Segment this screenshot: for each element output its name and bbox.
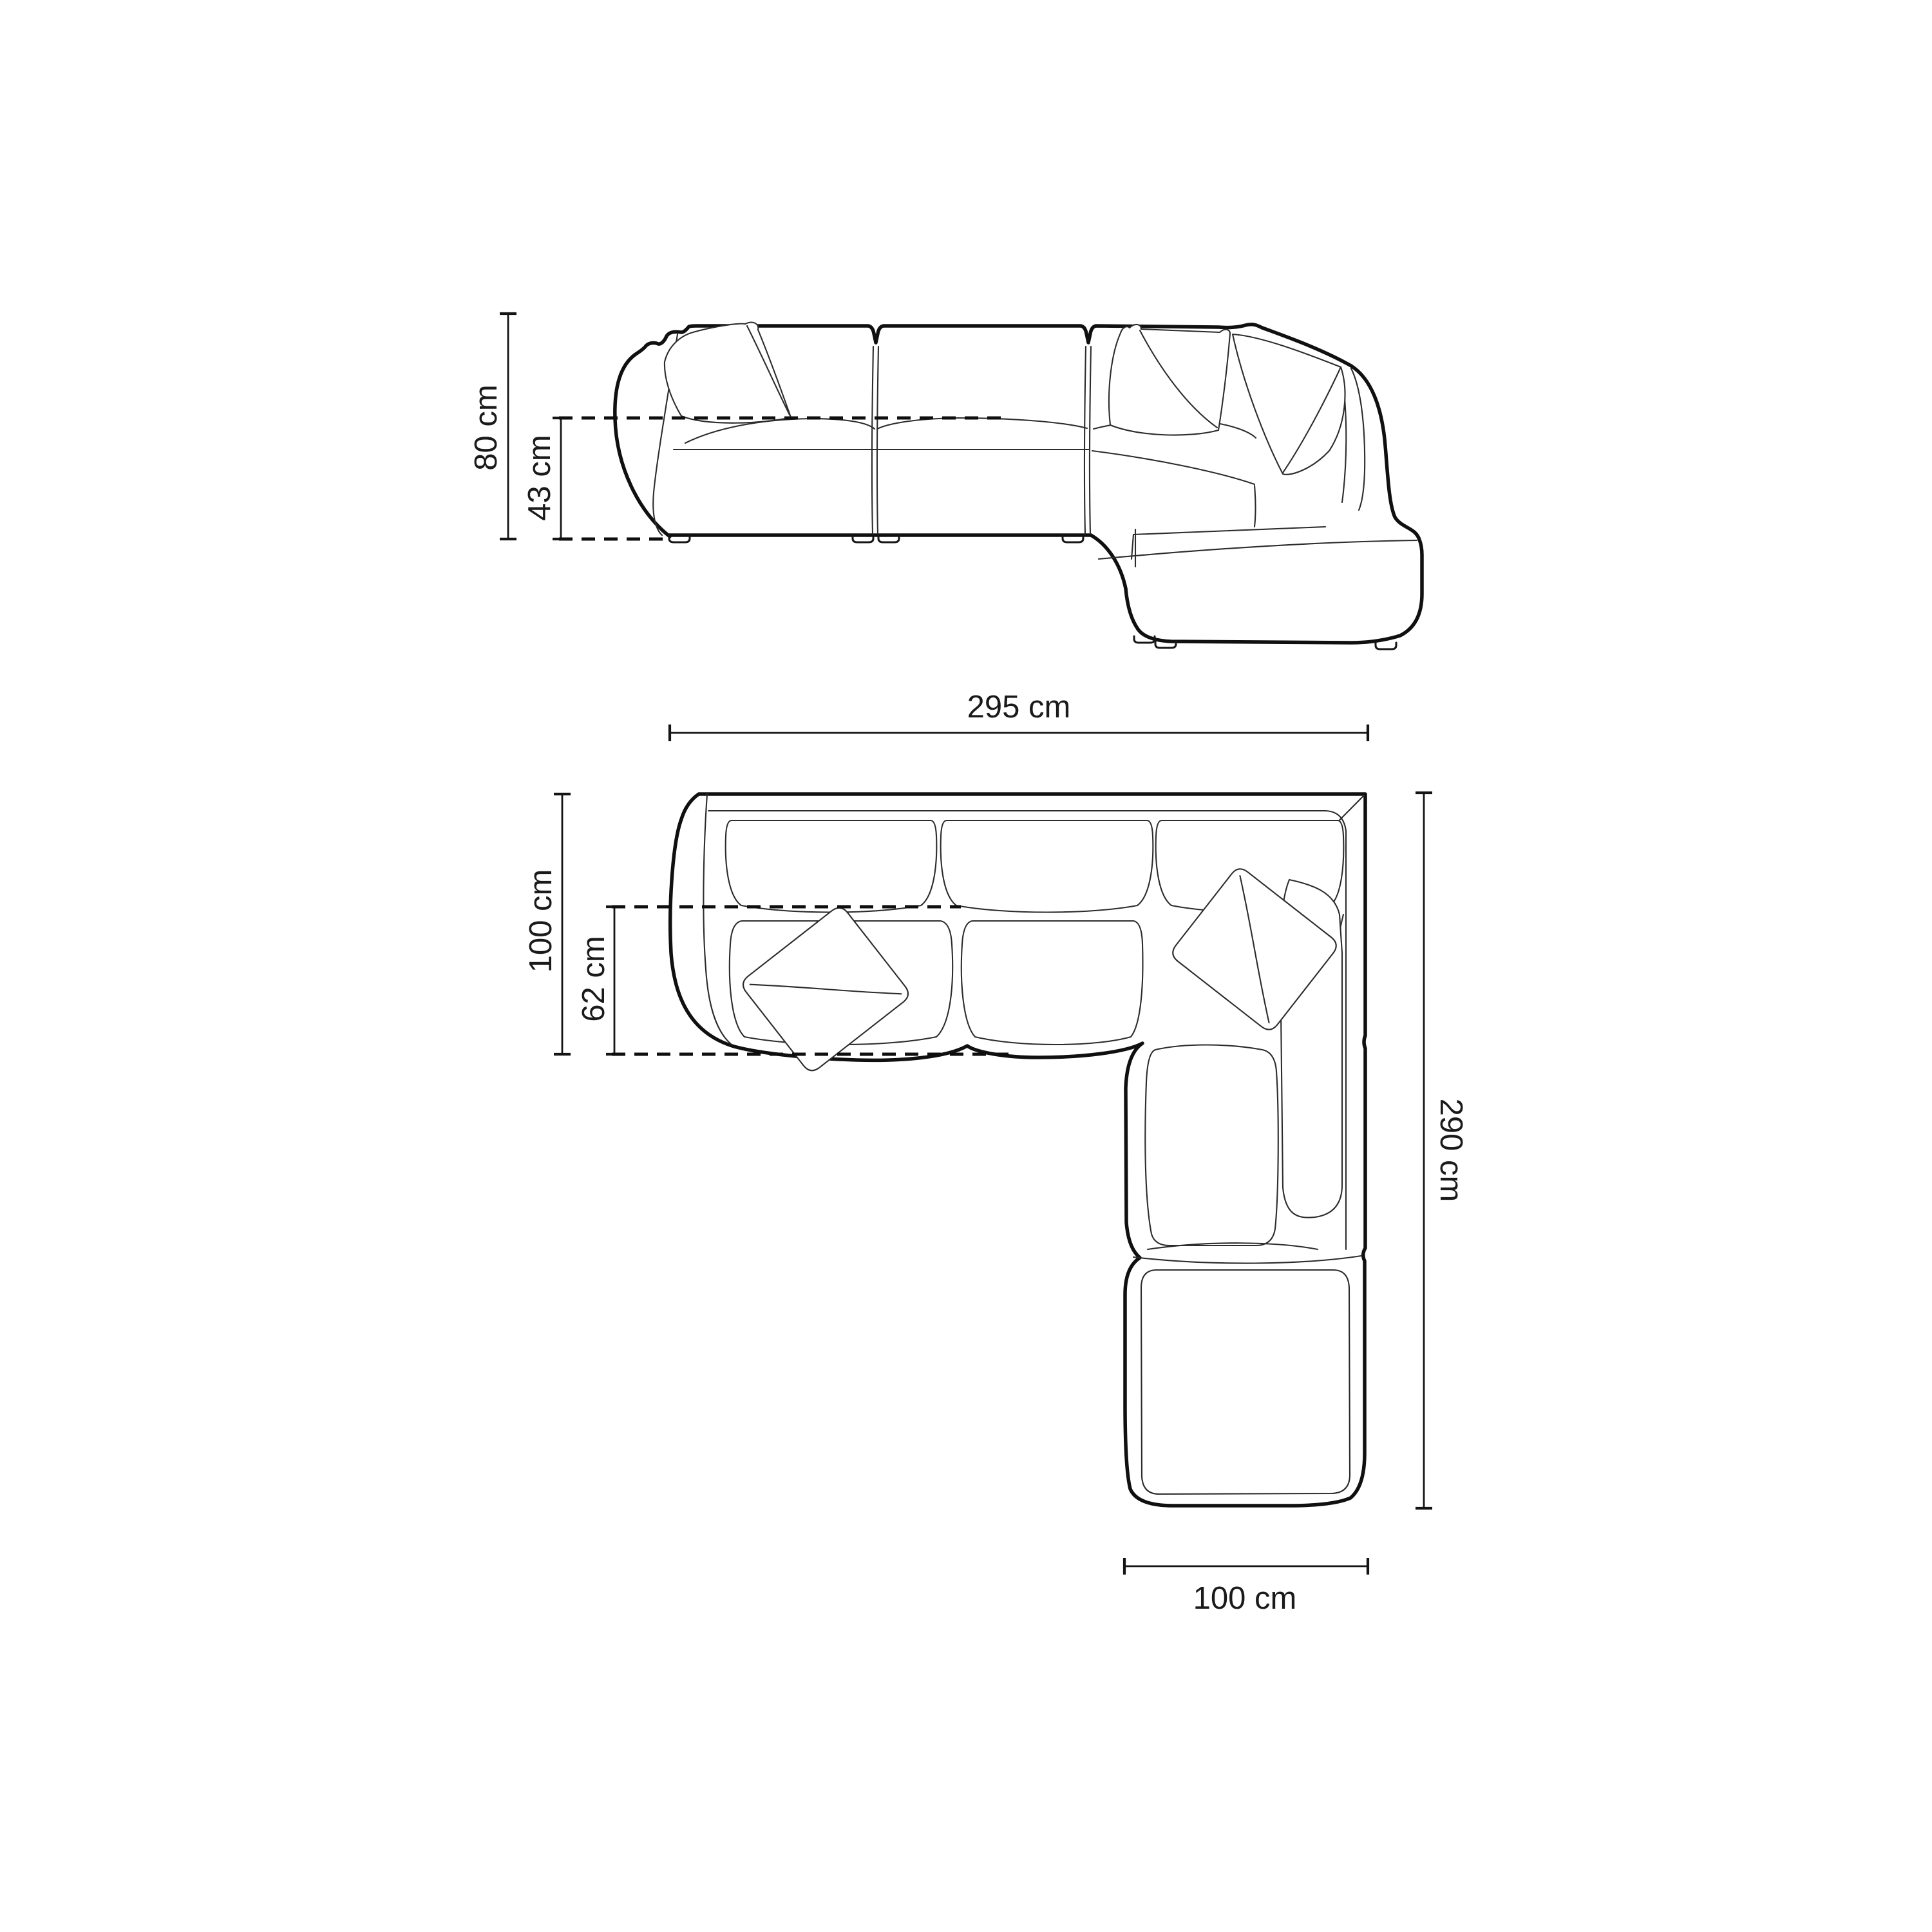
front-module-seam-1b xyxy=(877,346,878,534)
dim-top-seat-depth: 62 cm xyxy=(576,907,623,1054)
front-module-seam-2b xyxy=(1090,346,1091,534)
top-view: 295 cm 100 cm 62 cm 290 cm xyxy=(524,690,1468,1616)
dim-top-ottoman-width: 100 cm xyxy=(1124,1558,1368,1616)
front-ottoman-top-front-edge xyxy=(1099,540,1417,559)
front-corner-sweep xyxy=(1091,535,1126,589)
front-corner-seat-front-edge xyxy=(1092,451,1255,484)
front-module-seam-1 xyxy=(872,346,873,534)
top-ottoman-inner-edge xyxy=(1141,1270,1350,1494)
dim-front-seat-height: 43 cm xyxy=(522,418,569,539)
dim-top-total-length: 290 cm xyxy=(1416,793,1468,1508)
dim-front-total-height: 80 cm xyxy=(469,314,516,539)
dim-top-total-depth: 100 cm xyxy=(524,794,571,1054)
dim-label-top-seat-depth: 62 cm xyxy=(576,936,611,1021)
front-ottoman-foot-right xyxy=(1376,643,1396,649)
dim-label-top-total-width: 295 cm xyxy=(967,690,1071,724)
dim-label-top-total-depth: 100 cm xyxy=(524,869,558,973)
top-seat-cushion-2 xyxy=(961,921,1143,1045)
front-ottoman-back-edge xyxy=(1133,527,1325,535)
dim-label-front-seat-height: 43 cm xyxy=(522,435,557,520)
front-corner-pillow-left xyxy=(1109,325,1230,435)
front-right-arm-inner-2 xyxy=(1351,368,1365,510)
front-seat-curve-2 xyxy=(877,418,1087,429)
front-left-pillow xyxy=(665,323,791,423)
top-back-cushion-2 xyxy=(941,820,1153,913)
front-corner-front-edge-vertical xyxy=(1255,486,1256,527)
top-junction-seam-lower xyxy=(1133,1256,1361,1264)
front-view: 80 cm 43 cm xyxy=(469,314,1422,649)
sofa-dimension-drawing: 80 cm 43 cm xyxy=(0,0,1932,1932)
top-right-seat-cushion xyxy=(1145,1045,1278,1246)
front-module-seam-2 xyxy=(1084,346,1086,534)
top-back-cushion-1 xyxy=(726,820,937,913)
dim-top-total-width: 295 cm xyxy=(670,690,1368,741)
dim-label-top-ottoman-width: 100 cm xyxy=(1193,1581,1297,1616)
dim-label-top-total-length: 290 cm xyxy=(1434,1099,1468,1202)
dim-label-front-total-height: 80 cm xyxy=(469,384,504,470)
